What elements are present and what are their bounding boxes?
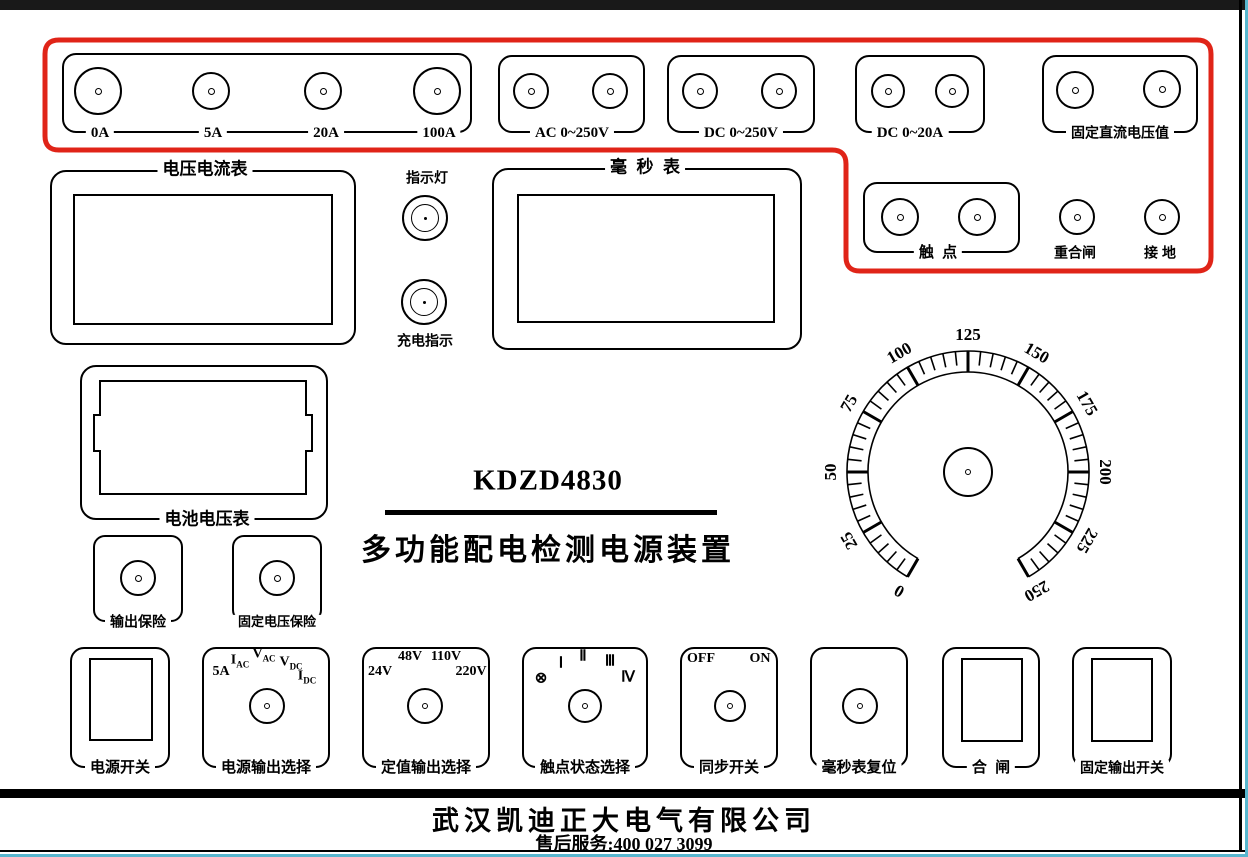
jack-ac250v-left[interactable] <box>513 73 549 109</box>
top-border-bar <box>0 0 1248 10</box>
label-100a: 100A <box>417 125 460 142</box>
dial-label-150: 150 <box>1021 338 1053 367</box>
label-contact: 触 点 <box>914 245 962 262</box>
volt-ammeter-display <box>73 194 333 325</box>
label-reclose: 重合闸 <box>1049 245 1101 260</box>
label-0a: 0A <box>86 125 114 142</box>
contact-pos-off: ⊗ <box>535 669 548 688</box>
sync-pos-off: OFF <box>687 651 715 667</box>
jack-dc20a-right[interactable] <box>935 74 969 108</box>
battery-voltmeter-display <box>92 373 318 503</box>
contact-pos-1: Ⅰ <box>559 654 563 673</box>
fixed-value-knob[interactable] <box>407 688 443 724</box>
contact-pos-4: Ⅳ <box>621 668 635 687</box>
dial-label-75: 75 <box>836 391 861 415</box>
sync-pos-on: ON <box>750 651 771 667</box>
label-dc-20a: DC 0~20A <box>872 125 949 142</box>
fixed-voltage-fuse[interactable] <box>259 560 295 596</box>
service-phone: 售后服务:400 027 3099 <box>536 830 713 856</box>
label-ac-250v: AC 0~250V <box>530 125 614 142</box>
charge-lamp <box>401 279 447 325</box>
right-border <box>1239 0 1242 852</box>
dial-label-125: 125 <box>955 325 981 344</box>
label-volt-ammeter: 电压电流表 <box>158 161 253 180</box>
fixed-pos-48v: 48V <box>398 649 422 665</box>
label-dc-250v: DC 0~250V <box>699 125 783 142</box>
label-20a: 20A <box>308 125 344 142</box>
label-power-switch: 电源开关 <box>85 760 155 777</box>
label-fixed-dc-voltage: 固定直流电压值 <box>1066 125 1174 140</box>
contact-pos-3: Ⅲ <box>605 652 615 671</box>
jack-dc20a-left[interactable] <box>871 74 905 108</box>
power-switch-rocker[interactable] <box>89 658 153 741</box>
dial-label-250: 250 <box>1021 577 1053 606</box>
label-indicator-lamp: 指示灯 <box>401 170 453 185</box>
dial-label-200: 200 <box>1096 459 1115 485</box>
jack-5a[interactable] <box>192 72 230 110</box>
range-dial-knob[interactable] <box>943 447 993 497</box>
dial-label-100: 100 <box>883 338 915 367</box>
jack-fixed-dc-left[interactable] <box>1056 71 1094 109</box>
jack-contact-right[interactable] <box>958 198 996 236</box>
dial-label-50: 50 <box>821 464 840 481</box>
output-pos-vac: VAC <box>252 647 275 664</box>
label-5a: 5A <box>199 125 227 142</box>
label-ground: 接 地 <box>1139 245 1181 260</box>
label-fixed-output-switch: 固定输出开关 <box>1075 760 1169 775</box>
indicator-lamp-core <box>411 204 439 232</box>
footer-divider-bar <box>0 789 1248 798</box>
dial-label-0: 0 <box>891 581 908 602</box>
output-fuse[interactable] <box>120 560 156 596</box>
label-charge-lamp: 充电指示 <box>392 333 458 348</box>
ms-meter-reset-knob[interactable] <box>842 688 878 724</box>
jack-contact-left[interactable] <box>881 198 919 236</box>
contact-pos-2: Ⅱ <box>579 647 586 666</box>
output-pos-5a: 5A <box>212 664 229 680</box>
label-power-output-selector: 电源输出选择 <box>216 760 316 777</box>
model-number: KDZD4830 <box>473 465 623 498</box>
label-close-switch: 合 闸 <box>967 760 1015 777</box>
jack-ground[interactable] <box>1144 199 1180 235</box>
title-divider <box>385 510 717 515</box>
output-pos-iac: IAC <box>231 653 249 670</box>
charge-lamp-core <box>410 288 438 316</box>
dial-label-25: 25 <box>836 529 861 553</box>
jack-ac250v-right[interactable] <box>592 73 628 109</box>
label-output-fuse: 输出保险 <box>105 614 171 629</box>
power-output-knob[interactable] <box>249 688 285 724</box>
sync-switch-knob[interactable] <box>714 690 746 722</box>
output-pos-idc: IDC <box>298 669 316 686</box>
label-ms-meter-reset: 毫秒表复位 <box>816 760 901 777</box>
fixed-pos-220v: 220V <box>455 664 486 680</box>
jack-reclose[interactable] <box>1059 199 1095 235</box>
label-fixed-value-selector: 定值输出选择 <box>376 760 476 777</box>
label-fixed-voltage-fuse: 固定电压保险 <box>233 615 321 629</box>
fixed-pos-110v: 110V <box>431 649 461 665</box>
dial-label-225: 225 <box>1073 525 1102 557</box>
device-title: 多功能配电检测电源装置 <box>361 525 735 569</box>
bottom-rule <box>0 850 1248 852</box>
dial-label-175: 175 <box>1073 387 1102 419</box>
label-battery-voltmeter: 电池电压表 <box>160 511 255 530</box>
jack-20a[interactable] <box>304 72 342 110</box>
jack-100a[interactable] <box>413 67 461 115</box>
label-contact-state-selector: 触点状态选择 <box>535 760 635 777</box>
contact-state-knob[interactable] <box>568 689 602 723</box>
jack-0a[interactable] <box>74 67 122 115</box>
fixed-pos-24v: 24V <box>368 664 392 680</box>
jack-dc250v-left[interactable] <box>682 73 718 109</box>
jack-fixed-dc-right[interactable] <box>1143 70 1181 108</box>
millisecond-meter-display <box>517 194 775 323</box>
close-switch-rocker[interactable] <box>961 658 1023 742</box>
label-sync-switch: 同步开关 <box>694 760 764 777</box>
device-front-panel: 0A 5A 20A 100A AC 0~250V DC 0~250V DC 0~… <box>0 0 1248 857</box>
jack-dc250v-right[interactable] <box>761 73 797 109</box>
current-terminal-group <box>62 53 472 133</box>
fixed-output-switch-rocker[interactable] <box>1091 658 1153 742</box>
indicator-lamp <box>402 195 448 241</box>
label-millisecond-meter: 毫 秒 表 <box>605 159 685 178</box>
